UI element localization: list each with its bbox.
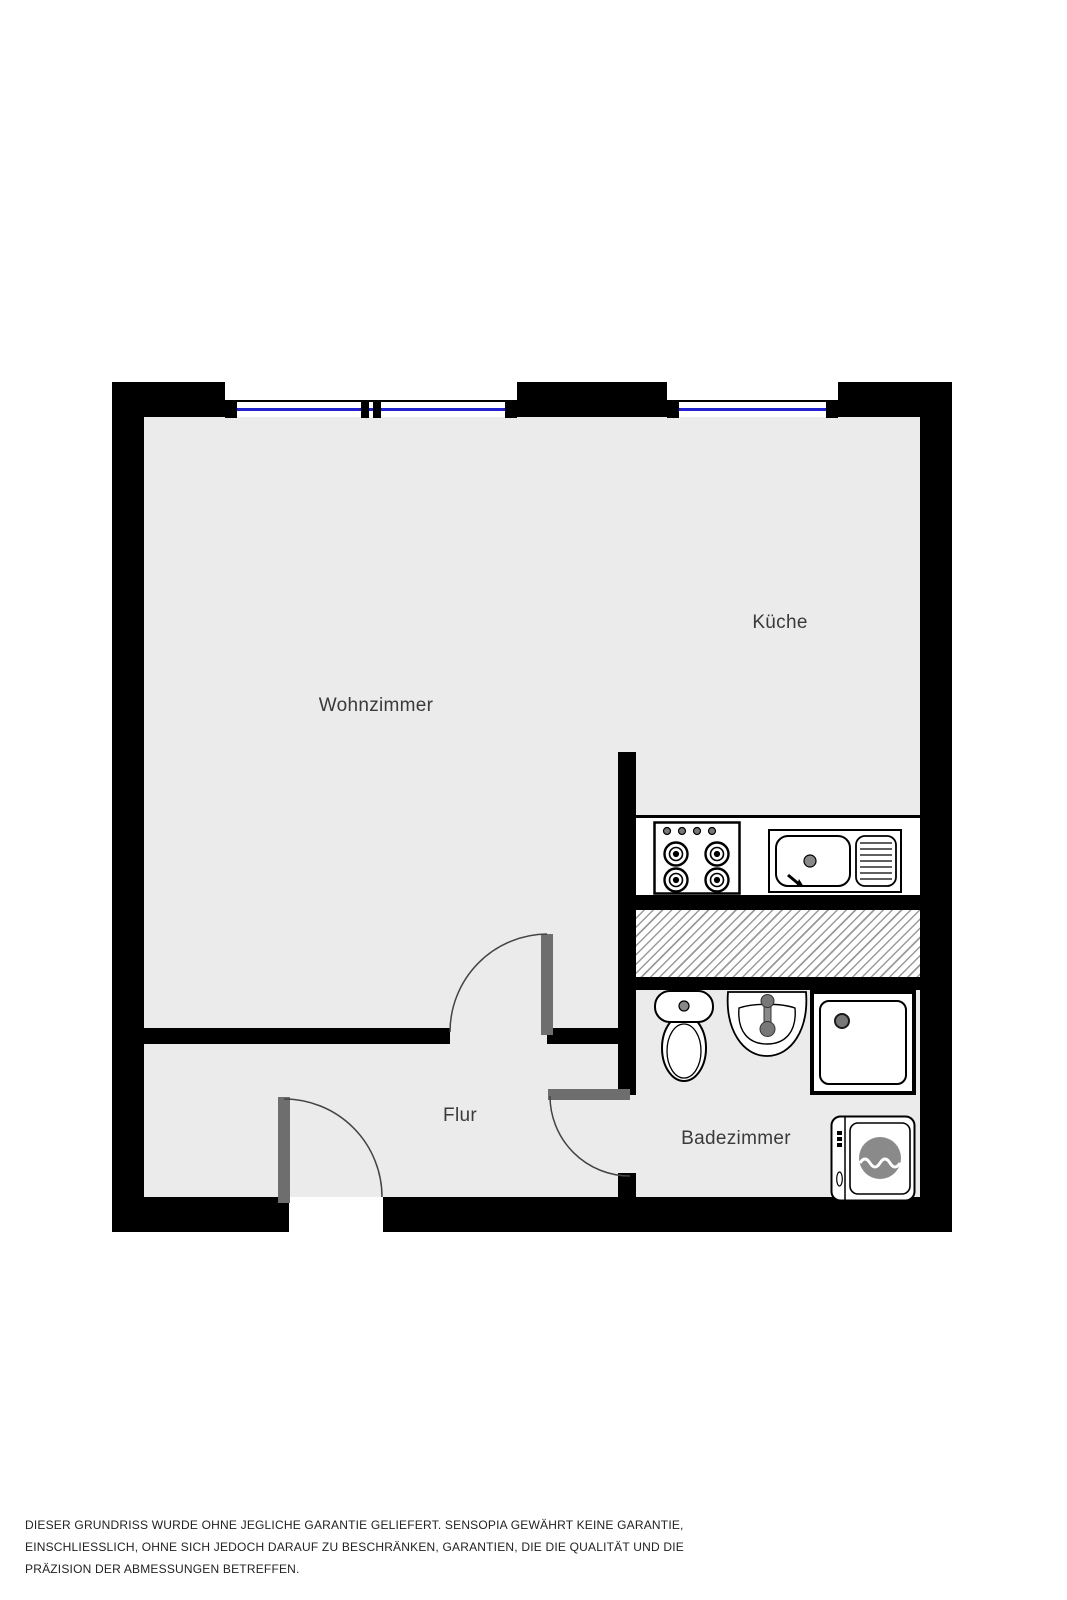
disclaimer-line: DIESER GRUNDRISS WURDE OHNE JEGLICHE GAR… [25,1514,684,1536]
window-mullion [361,402,369,418]
shower-icon [810,990,916,1095]
wall-bottom-segment-left [112,1197,289,1232]
wall-bottom-segment-right [383,1197,952,1232]
toilet-icon [652,988,716,1086]
shower-tray [819,1000,907,1085]
room-label-bathroom: Badezimmer [681,1128,791,1150]
bathroom-door-leaf [548,1089,630,1100]
room-label-living-room: Wohnzimmer [319,695,434,717]
stove-icon [653,821,741,895]
disclaimer-text: DIESER GRUNDRISS WURDE OHNE JEGLICHE GAR… [25,1514,684,1580]
kitchen-sink-icon [768,829,902,893]
entrance-door-leaf [278,1097,290,1203]
window-end-cap [225,402,237,418]
floorplan-page: { "rooms": { "living_room": { "label": "… [0,0,1067,1600]
wall-right [920,382,952,1232]
shower-drain [834,1013,850,1029]
washbasin-icon [725,988,809,1064]
window-glass [667,408,838,411]
room-label-hallway: Flur [443,1105,477,1127]
disclaimer-line: EINSCHLIESSLICH, OHNE SICH JEDOCH DARAUF… [25,1536,684,1558]
disclaimer-line: PRÄZISION DER ABMESSUNGEN BETREFFEN. [25,1558,684,1580]
floor-plan: Wohnzimmer Küche Flur Badezimmer [0,0,1067,1600]
window-mullion [373,402,381,418]
room-label-kitchen: Küche [752,612,807,634]
wall-top-segment-middle [517,382,667,417]
washing-machine-icon [830,1115,916,1202]
hatched-shaft-area [636,910,920,977]
window-end-cap [667,402,679,418]
wall-left [112,382,144,1232]
window-living-room [225,400,517,416]
living-room-door-leaf [541,934,553,1035]
wall-hallway-left [144,1028,450,1044]
wall-above-shaft [618,895,920,910]
floor-area [144,417,920,1197]
wall-top-segment-left [112,382,225,417]
window-kitchen [667,400,838,416]
wall-hallway-right [547,1028,636,1044]
wall-top-segment-right [838,382,952,417]
window-glass [225,408,517,411]
window-end-cap [826,402,838,418]
wall-bathroom-door-stub [618,1173,636,1197]
window-end-cap [505,402,517,418]
